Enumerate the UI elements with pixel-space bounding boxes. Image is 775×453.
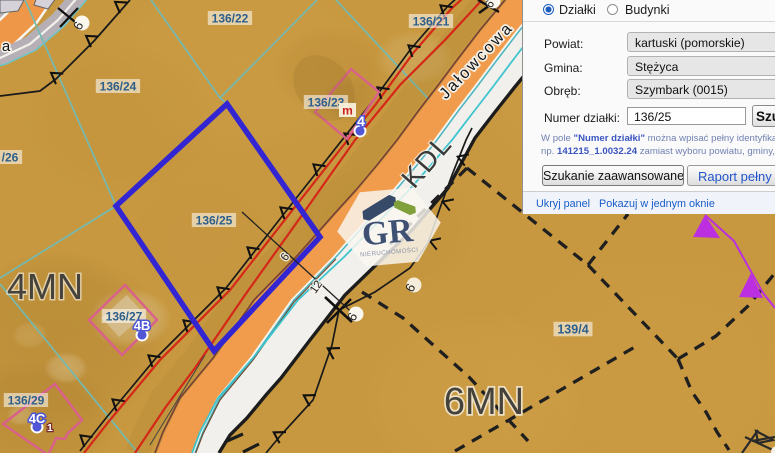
svg-text:6MN: 6MN xyxy=(444,381,524,423)
svg-text:136/21: 136/21 xyxy=(413,14,450,28)
svg-text:136/22: 136/22 xyxy=(212,11,249,25)
svg-text:4MN: 4MN xyxy=(7,266,83,307)
svg-text:136/24: 136/24 xyxy=(100,79,137,93)
svg-text:139/4: 139/4 xyxy=(557,323,588,337)
svg-text:a: a xyxy=(2,38,11,55)
svg-text:1: 1 xyxy=(47,422,53,434)
svg-text:136/29: 136/29 xyxy=(8,393,45,407)
svg-text:4C: 4C xyxy=(29,411,46,426)
svg-text:4: 4 xyxy=(357,113,365,129)
svg-text:m: m xyxy=(342,104,353,118)
svg-text:136/25: 136/25 xyxy=(196,213,233,227)
svg-text:4B: 4B xyxy=(134,318,151,333)
svg-text:/26: /26 xyxy=(2,150,19,164)
